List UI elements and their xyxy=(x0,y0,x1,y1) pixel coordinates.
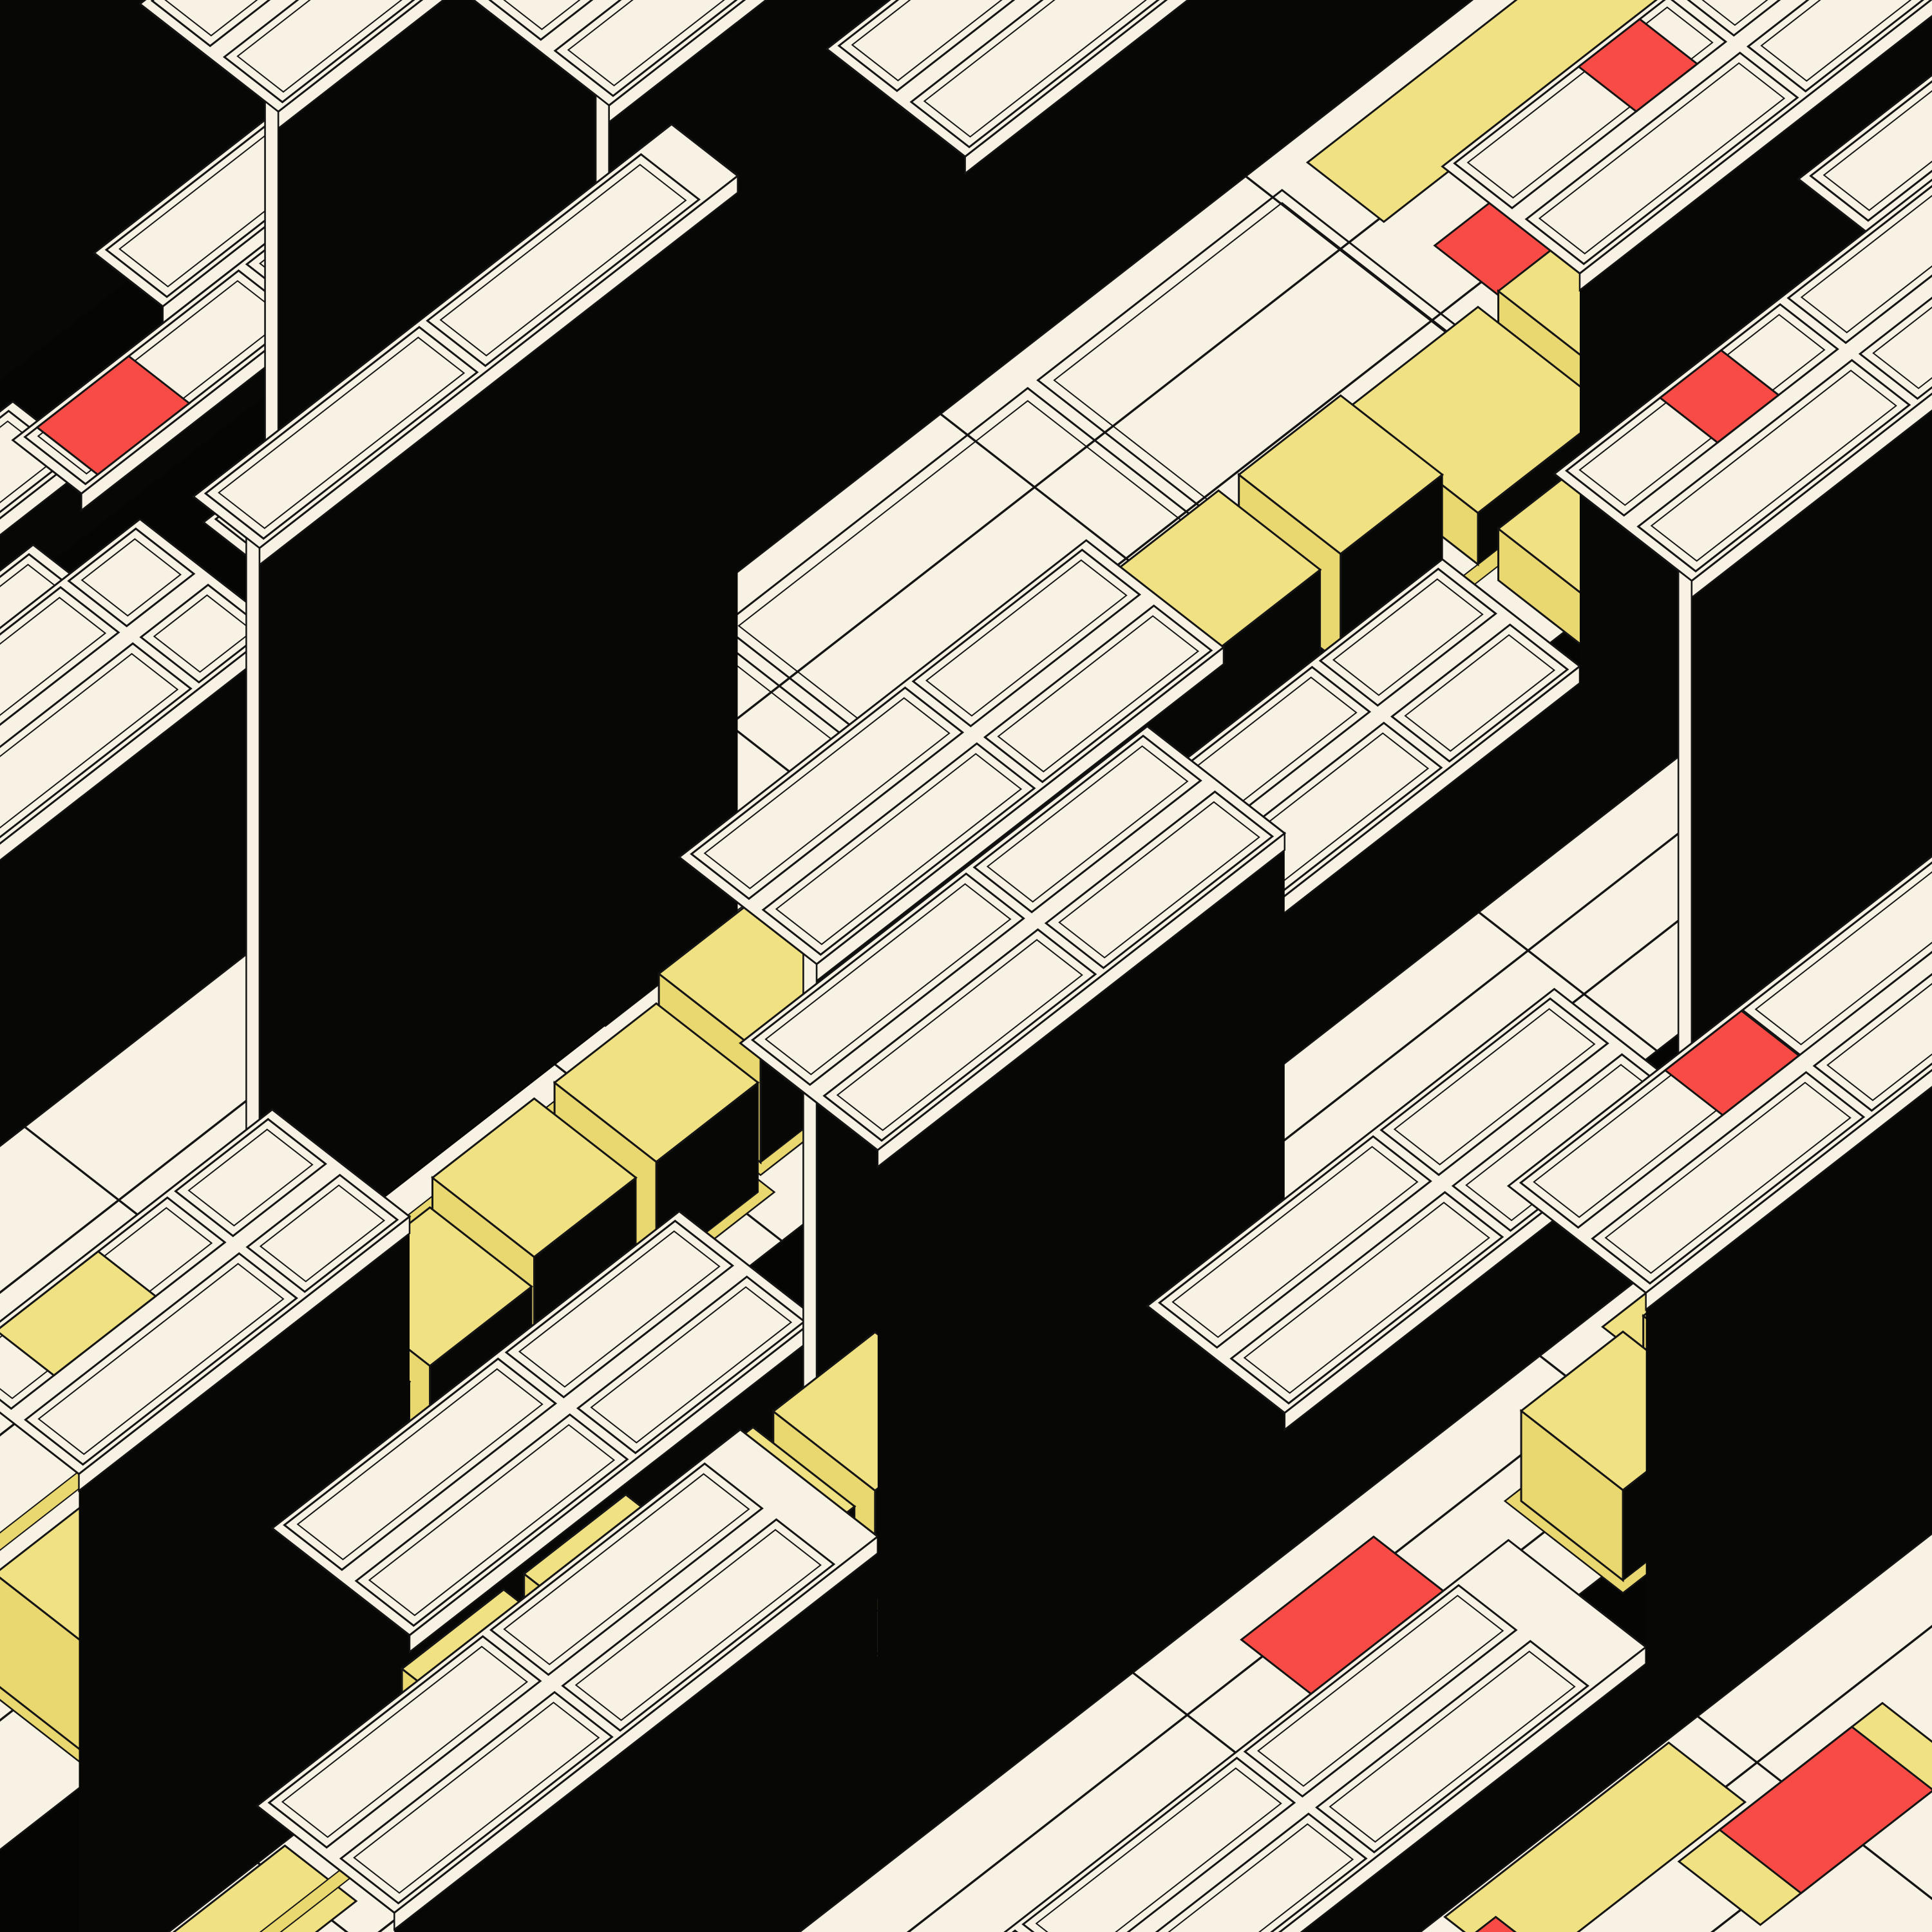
art-canvas xyxy=(0,0,1932,1932)
generative-isometric-artwork xyxy=(0,0,1932,1932)
